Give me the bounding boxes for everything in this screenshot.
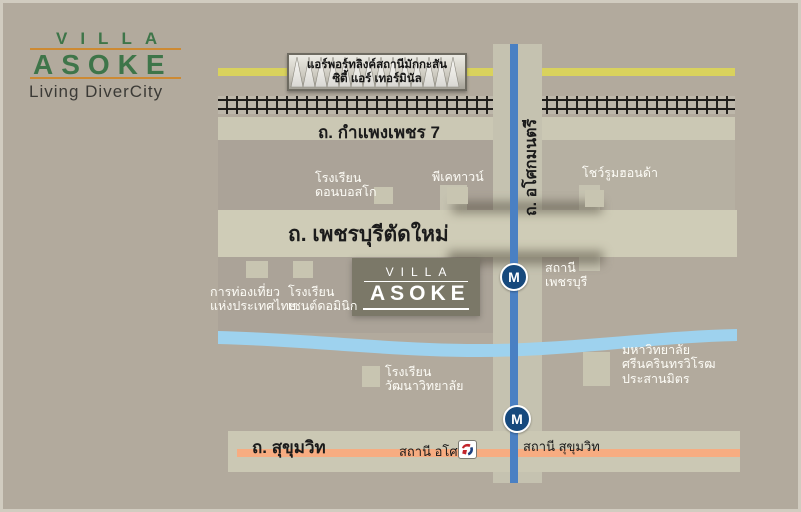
label-srinakharinwirot-university: มหาวิทยาลัย ศรีนครินทรวิโรฒ ประสานมิตร bbox=[622, 343, 716, 386]
mrt-station-icon: M bbox=[503, 405, 531, 433]
building-square-university bbox=[583, 352, 610, 386]
label-pk-tower: พีเคทาวน์ bbox=[432, 170, 484, 184]
building-square-st-dominic bbox=[293, 261, 313, 278]
bts-logo-icon bbox=[458, 440, 477, 459]
label-wattana-academy: โรงเรียนวัฒนาวิทยาลัย bbox=[385, 365, 463, 394]
label-tourism-authority: การท่องเที่ยวแห่งประเทศไทย bbox=[210, 285, 296, 314]
building-square-pk-tower bbox=[447, 187, 468, 204]
road-name-phetchaburi: ถ. เพชรบุรีตัดใหม่ bbox=[288, 218, 449, 251]
logo-tagline: Living DiverCity bbox=[29, 82, 163, 102]
label-st-dominic-school: โรงเรียนเซนต์ดอมินิก bbox=[288, 285, 357, 314]
building-square-tat bbox=[246, 261, 268, 278]
road-name-sukhumvit: ถ. สุขุมวิท bbox=[252, 434, 326, 461]
railway-rail-top bbox=[218, 99, 735, 101]
label-bts-asok-station: สถานี อโศก bbox=[399, 441, 466, 462]
label-honda-showroom: โชว์รูมฮอนด้า bbox=[582, 166, 658, 180]
road-name-kamphaeng-phet7: ถ. กำแพงเพชร 7 bbox=[318, 119, 440, 146]
label-don-bosco-school: โรงเรียนดอนบอสโก bbox=[315, 171, 377, 200]
building-square-honda bbox=[585, 190, 604, 207]
airport-link-station-label: แอร์พอร์ทลิงค์สถานีมักกะสัน ซิตี้ แอร์ เ… bbox=[289, 58, 465, 87]
airport-link-makkasan-station-box: แอร์พอร์ทลิงค์สถานีมักกะสัน ซิตี้ แอร์ เ… bbox=[287, 53, 467, 91]
logo-rule-bottom bbox=[30, 77, 181, 79]
villa-asoke-project-box: VILLA ASOKE bbox=[352, 258, 480, 316]
railway-rail-bottom bbox=[218, 108, 735, 110]
building-square-wattana bbox=[362, 366, 380, 387]
project-villa-text: VILLA bbox=[364, 265, 468, 282]
logo-villa-text: VILLA bbox=[56, 29, 170, 49]
project-asoke-text: ASOKE bbox=[363, 282, 469, 310]
mrt-station-icon: M bbox=[500, 263, 528, 291]
label-mrt-sukhumvit-station: สถานี สุขุมวิท bbox=[523, 436, 600, 457]
kamphaeng-phet7-road bbox=[218, 117, 735, 140]
label-mrt-phetchaburi-station: สถานีเพชรบุรี bbox=[545, 261, 587, 290]
villa-asoke-location-map: VILLA ASOKE Living DiverCity bbox=[0, 0, 801, 512]
road-name-asoke-montri: ถ. อโศกมนตรี bbox=[519, 120, 544, 216]
